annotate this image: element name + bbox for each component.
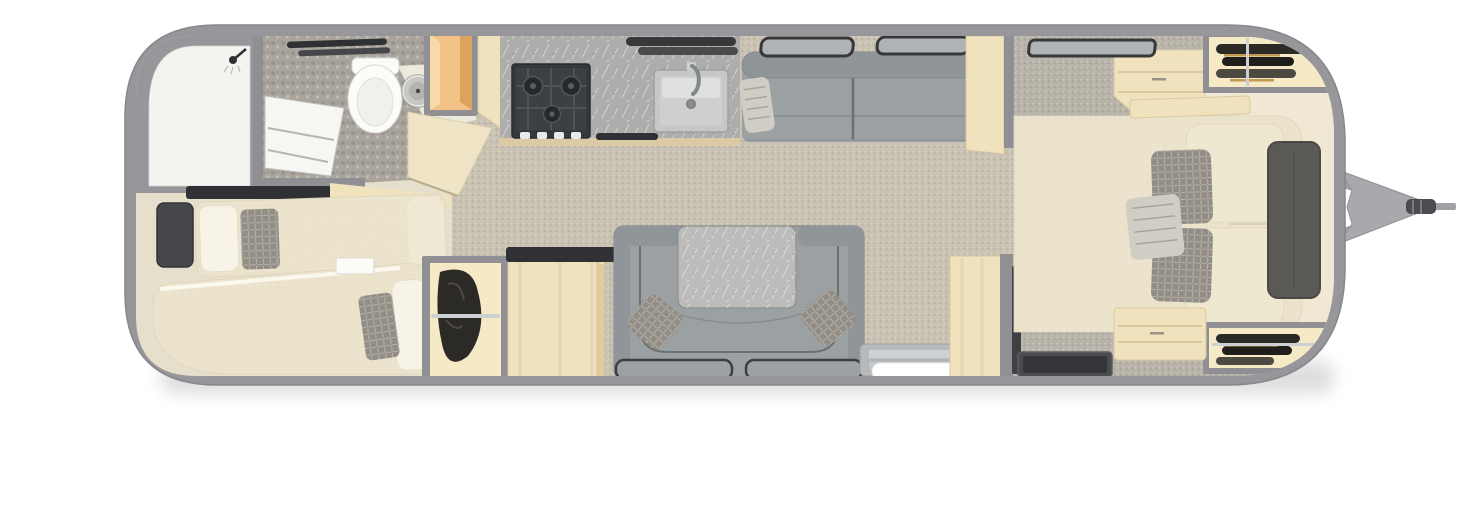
twin-upper-pillow-gray: [240, 208, 280, 269]
twin-upper-bolster: [407, 197, 445, 266]
sofa: [738, 52, 974, 142]
bedroom-window: [1028, 40, 1156, 56]
floorplan-stage: [0, 0, 1460, 509]
shower: [149, 46, 250, 186]
twin-wardrobe: [422, 256, 508, 382]
nightstand-white: [336, 258, 374, 274]
bedroom-partition-wall-bottom: [1000, 254, 1013, 378]
tv: [1018, 352, 1112, 377]
entry-partition: [950, 254, 1013, 378]
bench-handle: [1150, 332, 1164, 335]
stove: [512, 64, 590, 139]
floorplan-svg: [0, 0, 1460, 509]
curb-wardrobe-rod: [1246, 38, 1249, 86]
road-wardrobe-rod: [1212, 343, 1320, 346]
twin-upper-pillow-white: [199, 205, 239, 272]
drawer-handle: [596, 133, 658, 140]
u-dinette: [614, 226, 864, 380]
kitchen-sink: [654, 62, 728, 132]
tv-screen: [1023, 356, 1107, 373]
foot-bench-bottom: [1114, 308, 1206, 360]
refrigerator-top: [506, 247, 616, 262]
shower-door: [265, 96, 344, 176]
twin-shelf-dark: [186, 186, 332, 199]
bathroom-divider-wall: [253, 36, 263, 188]
bed-pillow-silver: [1125, 193, 1185, 260]
twin-wardrobe-rod: [431, 314, 500, 318]
queen-bed: [1014, 116, 1302, 332]
sofa-window-right: [876, 37, 970, 54]
interior: [131, 28, 1334, 382]
dinette-table: [678, 226, 796, 308]
curb-wardrobe-clothes: [1216, 44, 1304, 82]
refrigerator-cabinet: [506, 247, 616, 382]
bathroom-cabinet: [424, 28, 478, 116]
galley-window-slats: [626, 37, 738, 55]
dresser-handle: [1152, 78, 1166, 81]
bedroom-partition-wall-top: [1004, 36, 1014, 148]
sofa-side-table: [966, 36, 1004, 154]
sofa-window-left: [760, 38, 854, 56]
nightstand-dark: [157, 203, 193, 267]
toilet: [348, 58, 402, 133]
foot-bench-top: [1130, 96, 1251, 118]
